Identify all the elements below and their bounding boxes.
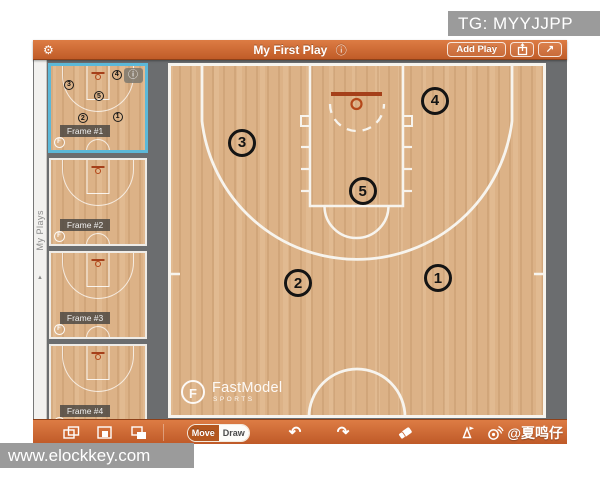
fastmodel-sub: SPORTS: [213, 397, 282, 404]
play-info-icon[interactable]: ⓘ: [336, 42, 347, 58]
mini-half-court-circle: [86, 139, 110, 151]
player-marker-3[interactable]: 3: [228, 129, 256, 157]
frame-thumbnail-4[interactable]: Frame #4F: [49, 344, 147, 419]
rim: [352, 99, 362, 109]
frames-stack-icon: [63, 426, 80, 440]
mode-segmented-control: Move Draw: [187, 424, 250, 442]
eraser-button[interactable]: [395, 420, 415, 445]
frame-label: Frame #2: [60, 219, 110, 231]
frame-label: Frame #1: [60, 125, 110, 137]
player-marker-2[interactable]: 2: [284, 269, 312, 297]
share-button[interactable]: [510, 42, 534, 57]
annotation-tool-button[interactable]: [457, 420, 477, 445]
tg-watermark: TG: MYYJJPP: [448, 11, 600, 36]
move-mode-button[interactable]: Move: [188, 425, 219, 441]
weibo-handle: @夏鸣仔: [507, 423, 563, 443]
mini-fastmodel-logo-icon: F: [54, 231, 65, 242]
weibo-icon: [487, 425, 504, 441]
frame-label: Frame #3: [60, 312, 110, 324]
my-plays-label: My Plays: [35, 210, 45, 251]
frame-thumbnail-2[interactable]: Frame #2F: [49, 158, 147, 246]
mini-half-court-circle: [86, 326, 110, 338]
basketball-court[interactable]: F FastModel SPORTS 12345: [168, 63, 546, 418]
add-frame-button[interactable]: [95, 420, 115, 445]
fullscreen-button[interactable]: ↗: [538, 42, 562, 57]
court-canvas: F FastModel SPORTS 12345: [148, 60, 567, 419]
frame-info-button[interactable]: ⓘ: [124, 68, 143, 83]
player-marker-5[interactable]: 5: [349, 177, 377, 205]
mini-fastmodel-logo-icon: F: [54, 137, 65, 148]
mini-player-1: 1: [113, 112, 123, 122]
mini-half-court-circle: [86, 233, 110, 245]
mini-fastmodel-logo-icon: F: [54, 324, 65, 335]
mini-player-5: 5: [94, 91, 104, 101]
content-area: ▲ My Plays Frame #1Fⓘ12345Frame #2FFrame…: [33, 60, 567, 419]
undo-icon: ↶: [289, 425, 302, 440]
titlebar-actions: Add Play ↗: [447, 42, 562, 57]
player-marker-4[interactable]: 4: [421, 87, 449, 115]
draw-mode-button[interactable]: Draw: [219, 425, 250, 441]
frame-thumbnail-1[interactable]: Frame #1Fⓘ12345: [48, 63, 148, 153]
mini-rim: [95, 74, 101, 80]
cone-flag-icon: [459, 425, 475, 440]
fastdraw-app-window: ⚙ My First Play ⓘ Add Play ↗ ▲ My Plays: [33, 40, 567, 444]
settings-gear-icon[interactable]: ⚙: [43, 44, 54, 56]
toolbar-divider: [163, 424, 164, 441]
fastmodel-logo-icon: F: [181, 380, 205, 404]
undo-button[interactable]: ↶: [285, 420, 305, 445]
my-plays-tab[interactable]: ▲ My Plays: [33, 60, 47, 419]
mini-player-4: 4: [112, 70, 122, 80]
frame-thumbnail-list: Frame #1Fⓘ12345Frame #2FFrame #3FFrame #…: [47, 60, 148, 419]
my-plays-collapse-icon: ▲: [37, 275, 43, 281]
mini-player-3: 3: [64, 80, 74, 90]
mini-rim: [95, 261, 101, 267]
play-title: My First Play: [253, 43, 327, 57]
site-watermark: www.elockkey.com: [0, 443, 194, 468]
title-bar: ⚙ My First Play ⓘ Add Play ↗: [33, 40, 567, 60]
mini-player-2: 2: [78, 113, 88, 123]
frames-browser-button[interactable]: [61, 420, 81, 445]
court-lines: [168, 63, 546, 418]
fastmodel-watermark: F FastModel SPORTS: [181, 380, 282, 404]
fastmodel-brand: FastModel: [212, 381, 282, 396]
player-marker-1[interactable]: 1: [424, 264, 452, 292]
frame-thumbnail-3[interactable]: Frame #3F: [49, 251, 147, 339]
mini-rim: [95, 354, 101, 360]
eraser-icon: [397, 425, 413, 440]
add-frame-icon: [97, 426, 113, 440]
share-icon: [517, 43, 528, 56]
redo-button[interactable]: ↷: [333, 420, 353, 445]
copy-frame-icon: [131, 426, 147, 440]
copy-frame-button[interactable]: [129, 420, 149, 445]
add-play-button[interactable]: Add Play: [447, 42, 506, 57]
frame-label: Frame #4: [60, 405, 110, 417]
mini-rim: [95, 168, 101, 174]
weibo-watermark: @夏鸣仔: [487, 420, 563, 445]
bottom-toolbar: Move Draw ↶ ↷: [33, 419, 567, 444]
redo-icon: ↷: [337, 425, 350, 440]
expand-arrow-icon: ↗: [546, 44, 554, 55]
